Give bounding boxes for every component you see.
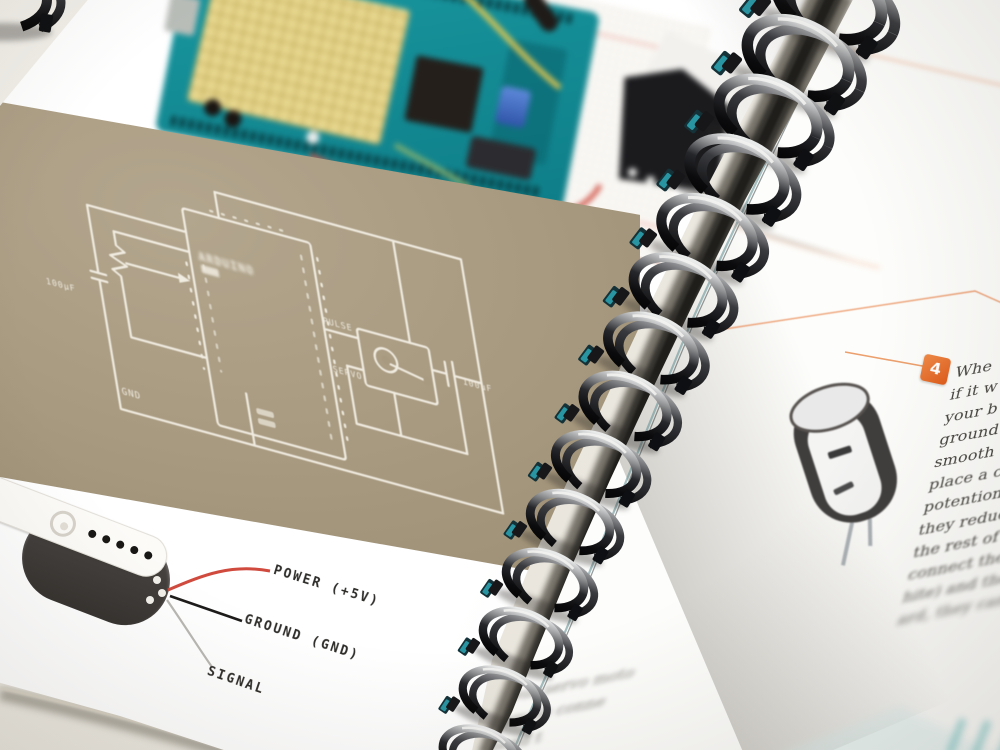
book-photo: ARDUINO xyxy=(0,0,1000,750)
spiral-binding xyxy=(0,0,1000,750)
